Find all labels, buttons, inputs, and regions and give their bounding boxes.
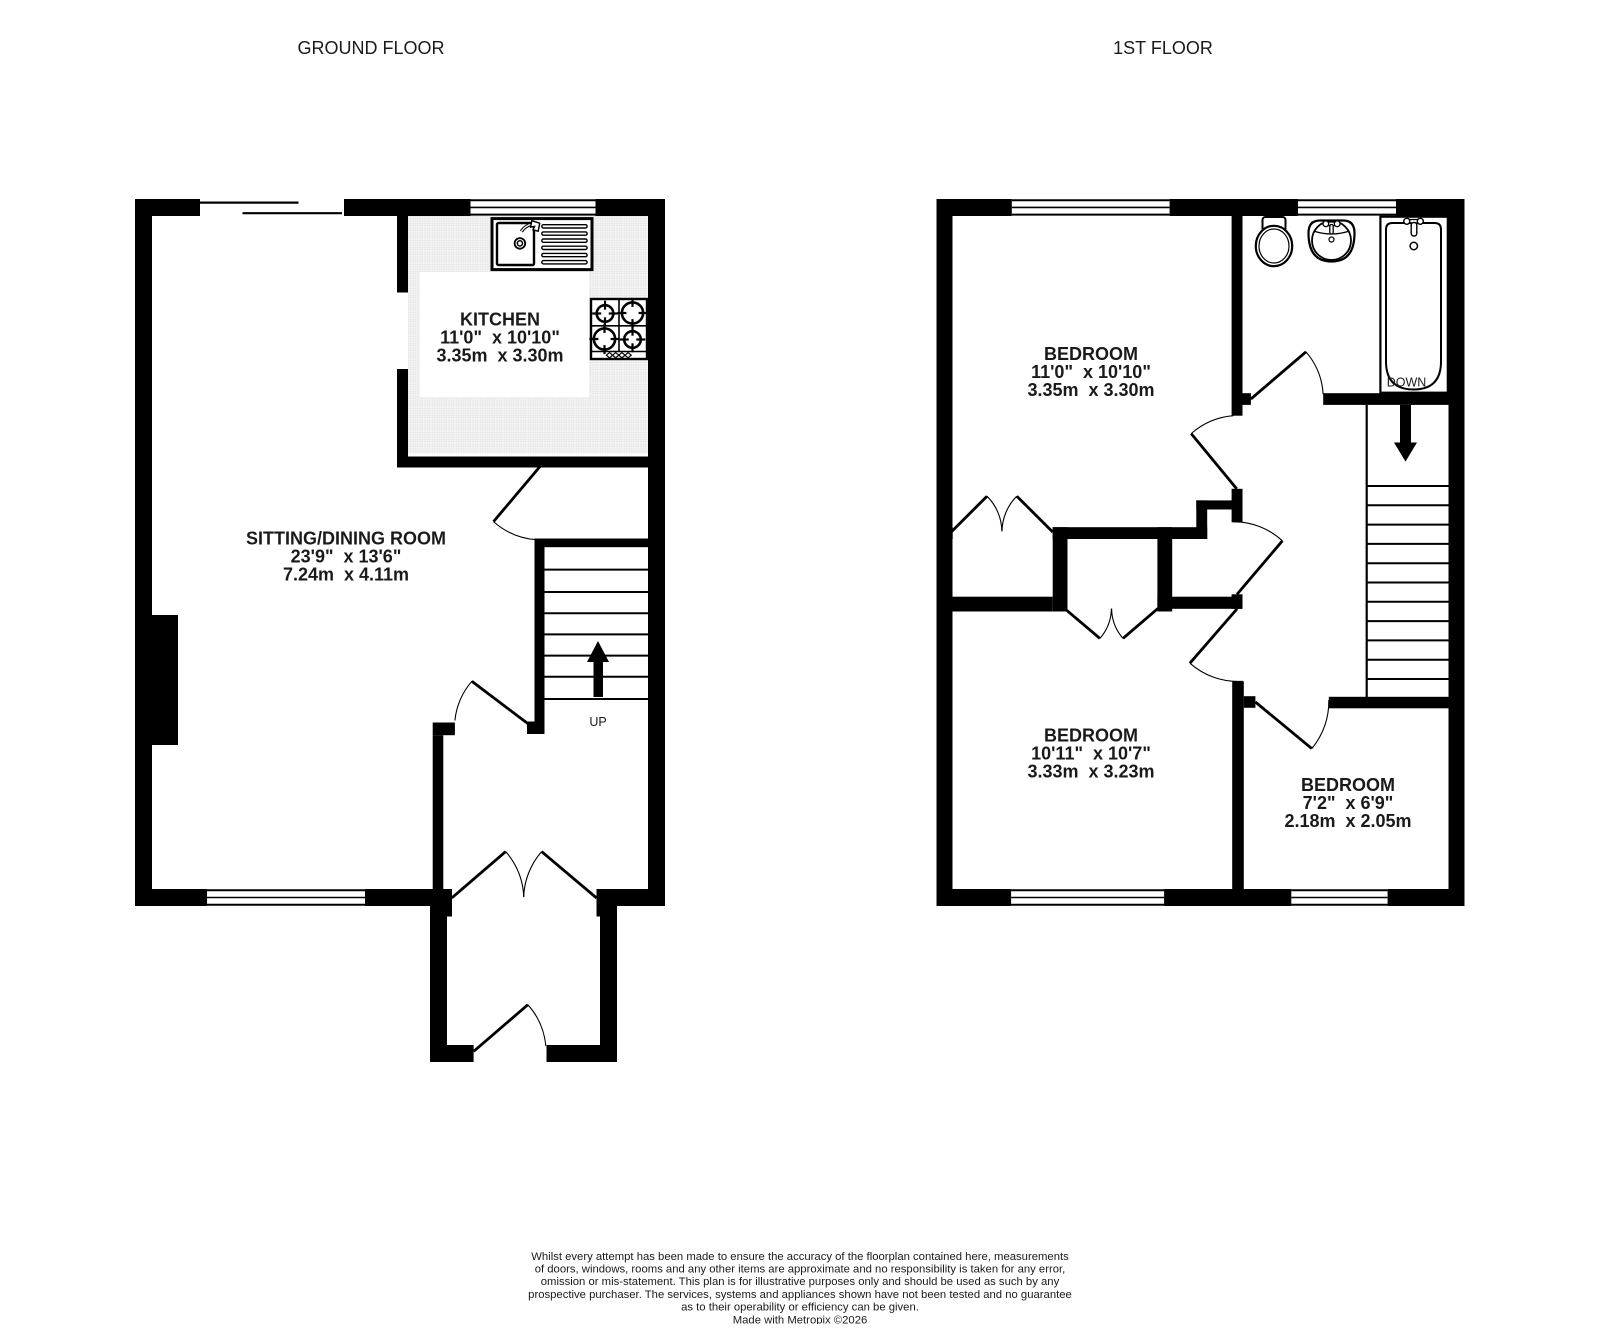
svg-text:KITCHEN: KITCHEN — [460, 310, 540, 330]
svg-text:23'9" x 13'6": 23'9" x 13'6" — [291, 547, 402, 567]
svg-text:10'11" x 10'7": 10'11" x 10'7" — [1031, 744, 1151, 764]
svg-text:3.33m x 3.23m: 3.33m x 3.23m — [1027, 762, 1154, 782]
svg-text:prospective purchaser. The ser: prospective purchaser. The services, sys… — [528, 1289, 1072, 1301]
svg-text:omission or mis-statement. Thi: omission or mis-statement. This plan is … — [541, 1276, 1060, 1288]
svg-text:of doors, windows, rooms and a: of doors, windows, rooms and any other i… — [535, 1264, 1066, 1276]
svg-text:7.24m x 4.11m: 7.24m x 4.11m — [283, 565, 409, 585]
svg-text:BEDROOM: BEDROOM — [1044, 726, 1138, 746]
svg-text:BEDROOM: BEDROOM — [1301, 775, 1395, 795]
svg-text:Whilst every attempt has been: Whilst every attempt has been made to en… — [531, 1251, 1069, 1263]
svg-text:Made with Metropix ©2026: Made with Metropix ©2026 — [733, 1314, 868, 1324]
svg-text:7'2" x 6'9": 7'2" x 6'9" — [1303, 793, 1394, 813]
svg-text:2.18m x 2.05m: 2.18m x 2.05m — [1284, 811, 1411, 831]
svg-text:GROUND FLOOR: GROUND FLOOR — [297, 38, 444, 58]
svg-text:1ST FLOOR: 1ST FLOOR — [1113, 38, 1213, 58]
svg-text:DOWN: DOWN — [1387, 375, 1427, 389]
svg-text:3.35m x 3.30m: 3.35m x 3.30m — [1027, 380, 1154, 400]
svg-text:BEDROOM: BEDROOM — [1044, 344, 1138, 364]
svg-text:as to their operability or eff: as to their operability or efficiency ca… — [681, 1302, 919, 1314]
svg-text:UP: UP — [589, 715, 606, 729]
svg-text:3.35m x 3.30m: 3.35m x 3.30m — [436, 346, 563, 366]
svg-text:SITTING/DINING ROOM: SITTING/DINING ROOM — [246, 529, 446, 549]
svg-text:11'0" x 10'10": 11'0" x 10'10" — [440, 328, 560, 348]
svg-text:11'0" x 10'10": 11'0" x 10'10" — [1031, 362, 1151, 382]
